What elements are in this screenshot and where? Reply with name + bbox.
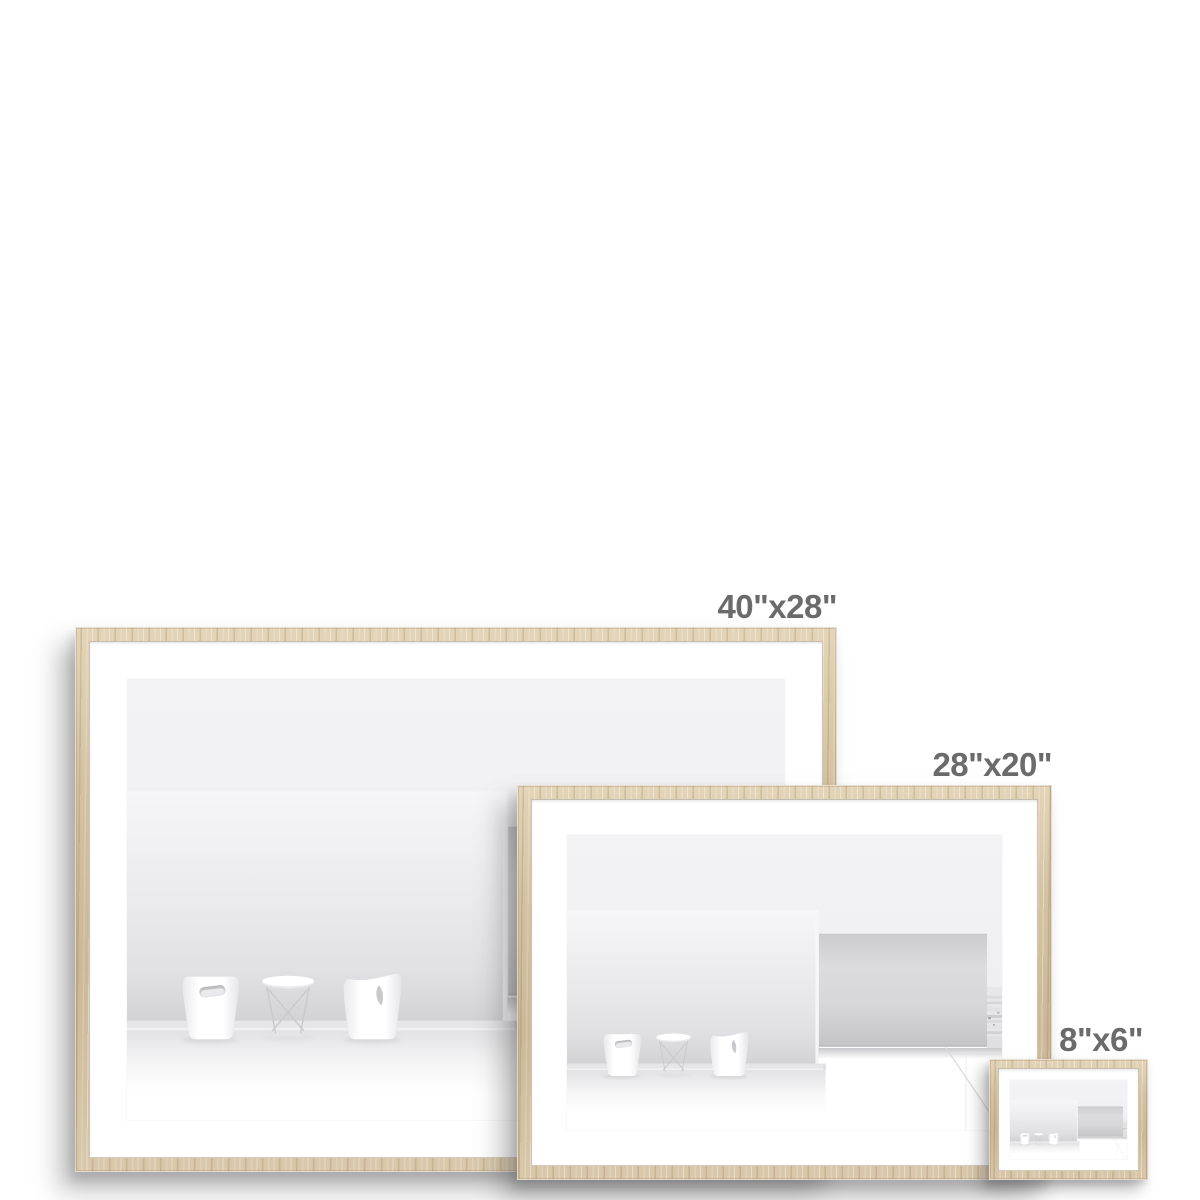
size-label-40x28: 40"x28" xyxy=(717,590,837,623)
framed-print-8x6 xyxy=(989,1059,1148,1180)
frame-mat-28x20 xyxy=(531,799,1038,1166)
framed-print-28x20 xyxy=(517,785,1052,1180)
artwork-photo-28x20 xyxy=(567,835,1002,1130)
artwork-image xyxy=(1010,1080,1127,1159)
frame-mat-8x6 xyxy=(998,1068,1139,1171)
size-label-28x20: 28"x20" xyxy=(932,748,1052,781)
product-size-comparison: 40"x28" 28"x20" 8"x6" xyxy=(0,0,1200,1200)
artwork-photo-8x6 xyxy=(1010,1080,1127,1159)
artwork-image xyxy=(567,835,1002,1130)
size-label-8x6: 8"x6" xyxy=(1059,1023,1143,1056)
